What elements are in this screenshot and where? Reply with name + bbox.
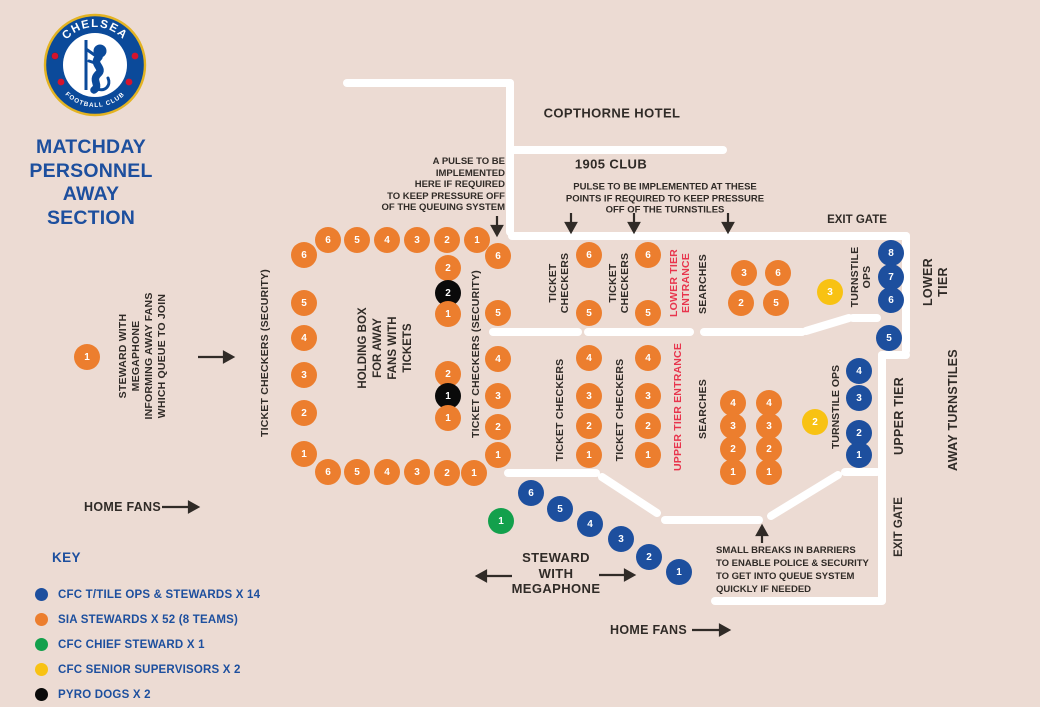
key-list: CFC T/TILE OPS & STEWARDS X 14SIA STEWAR…	[35, 582, 260, 707]
label-lower-tier: LOWER TIER	[921, 258, 951, 306]
orange-steward-marker: 1	[461, 460, 487, 486]
label-exit-gate-top: EXIT GATE	[827, 214, 887, 228]
label-1905-club: 1905 CLUB	[575, 156, 647, 171]
key-item: CFC SENIOR SUPERVISORS X 2	[35, 657, 260, 682]
orange-steward-marker: 5	[763, 290, 789, 316]
annotation-small-breaks: SMALL BREAKS IN BARRIERS TO ENABLE POLIC…	[716, 544, 869, 596]
home-fans-bottom-arrow	[692, 625, 729, 635]
orange-steward-marker: 1	[576, 442, 602, 468]
blue-steward-marker: 8	[878, 240, 904, 266]
orange-steward-marker: 5	[635, 300, 661, 326]
label-ticket-checkers-security-left: TICKET CHECKERS (SECURITY)	[259, 269, 271, 437]
blue-steward-marker: 4	[846, 358, 872, 384]
orange-steward-marker: 6	[576, 242, 602, 268]
label-steward-megaphone-bottom: STEWARD WITH MEGAPHONE	[512, 550, 601, 597]
logo-ball-icon	[52, 53, 59, 60]
orange-steward-marker: 6	[291, 242, 317, 268]
orange-steward-marker: 2	[576, 413, 602, 439]
key-item: CFC CHIEF STEWARD X 1	[35, 632, 260, 657]
orange-steward-marker: 2	[291, 400, 317, 426]
key-item-label: CFC CHIEF STEWARD X 1	[58, 639, 205, 651]
orange-steward-marker: 3	[485, 383, 511, 409]
orange-steward-marker: 1	[74, 344, 100, 370]
page-title: MATCHDAY PERSONNEL AWAY SECTION	[11, 136, 171, 230]
label-home-fans-left: HOME FANS	[84, 500, 161, 515]
orange-steward-marker: 2	[485, 414, 511, 440]
wall-queue-diagonal-1	[602, 477, 657, 513]
blue-steward-marker: 3	[608, 526, 634, 552]
pulse-left-arrow	[492, 216, 502, 235]
key-item: SIA STEWARDS X 52 (8 TEAMS)	[35, 607, 260, 632]
orange-steward-marker: 6	[765, 260, 791, 286]
orange-steward-marker: 2	[728, 290, 754, 316]
orange-steward-marker: 4	[485, 346, 511, 372]
orange-steward-marker: 1	[720, 459, 746, 485]
orange-steward-marker: 1	[435, 301, 461, 327]
wall-diagonal-lower-tier	[806, 318, 849, 331]
label-turnstile-ops-upper: TURNSTILE OPS	[849, 247, 873, 308]
orange-steward-marker: 4	[635, 345, 661, 371]
key-heading: KEY	[52, 550, 81, 566]
home-fans-left-arrow	[162, 502, 198, 512]
orange-legend-dot-icon	[35, 613, 48, 626]
orange-steward-marker: 1	[291, 441, 317, 467]
label-lower-tier-entrance: LOWER TIER ENTRANCE	[668, 249, 692, 317]
key-item-label: SIA STEWARDS X 52 (8 TEAMS)	[58, 614, 238, 626]
logo-ball-icon	[132, 53, 139, 60]
orange-steward-marker: 6	[315, 227, 341, 253]
orange-steward-marker: 3	[635, 383, 661, 409]
label-home-fans-bottom: HOME FANS	[610, 623, 687, 638]
orange-steward-marker: 6	[485, 243, 511, 269]
blue-steward-marker: 3	[846, 385, 872, 411]
key-item: CFC T/TILE OPS & STEWARDS X 14	[35, 582, 260, 607]
orange-steward-marker: 4	[374, 227, 400, 253]
yellow-legend-dot-icon	[35, 663, 48, 676]
label-ticket-checkers-2-lower: TICKET CHECKERS	[614, 359, 626, 462]
blue-steward-marker: 5	[876, 325, 902, 351]
label-holding-box: HOLDING BOX FOR AWAY FANS WITH TICKETS	[356, 307, 416, 388]
orange-steward-marker: 5	[291, 290, 317, 316]
blue-steward-marker: 5	[547, 496, 573, 522]
label-searches-upper: SEARCHES	[697, 254, 709, 314]
orange-steward-marker: 1	[756, 459, 782, 485]
blue-legend-dot-icon	[35, 588, 48, 601]
logo-flower-icon	[58, 79, 65, 86]
label-copthorne-hotel: COPTHORNE HOTEL	[544, 105, 681, 120]
label-steward-megaphone-left: STEWARD WITH MEGAPHONE INFORMING AWAY FA…	[117, 292, 169, 419]
orange-steward-marker: 4	[576, 345, 602, 371]
orange-steward-marker: 2	[434, 227, 460, 253]
orange-steward-marker: 4	[374, 459, 400, 485]
black-legend-dot-icon	[35, 688, 48, 701]
orange-steward-marker: 4	[291, 325, 317, 351]
orange-steward-marker: 2	[635, 413, 661, 439]
blue-steward-marker: 4	[577, 511, 603, 537]
orange-steward-marker: 3	[404, 459, 430, 485]
chelsea-club-logo: CHELSEA FOOTBALL CLUB	[42, 12, 148, 118]
diagram-stage: CHELSEA FOOTBALL CLUB MATCHDAY PERSONNEL…	[0, 0, 1040, 707]
green-legend-dot-icon	[35, 638, 48, 651]
orange-steward-marker: 5	[344, 227, 370, 253]
steward-bottom-right-arrow	[599, 570, 634, 580]
key-item-label: CFC SENIOR SUPERVISORS X 2	[58, 664, 241, 676]
blue-steward-marker: 6	[518, 480, 544, 506]
blue-steward-marker: 1	[846, 442, 872, 468]
key-item-label: PYRO DOGS X 2	[58, 689, 151, 701]
logo-flower-icon	[126, 79, 133, 86]
label-exit-gate-right: EXIT GATE	[893, 497, 905, 557]
steward-left-arrow	[198, 352, 233, 362]
orange-steward-marker: 3	[731, 260, 757, 286]
label-searches-lower: SEARCHES	[697, 379, 709, 439]
label-ticket-checkers-1-upper: TICKET CHECKERS	[547, 253, 571, 314]
orange-steward-marker: 5	[344, 459, 370, 485]
green-steward-marker: 1	[488, 508, 514, 534]
blue-steward-marker: 1	[666, 559, 692, 585]
orange-steward-marker: 3	[404, 227, 430, 253]
steward-bottom-left-arrow	[477, 571, 512, 581]
orange-steward-marker: 1	[635, 442, 661, 468]
small-breaks-arrow	[757, 526, 767, 543]
orange-steward-marker: 5	[485, 300, 511, 326]
label-turnstile-ops-lower: TURNSTILE OPS	[830, 365, 842, 449]
key-item-label: CFC T/TILE OPS & STEWARDS X 14	[58, 589, 260, 601]
label-ticket-checkers-1-lower: TICKET CHECKERS	[554, 359, 566, 462]
orange-steward-marker: 6	[315, 459, 341, 485]
orange-steward-marker: 5	[576, 300, 602, 326]
orange-steward-marker: 1	[485, 442, 511, 468]
label-away-turnstiles: AWAY TURNSTILES	[946, 349, 960, 471]
blue-steward-marker: 2	[636, 544, 662, 570]
annotation-pulse-left: A PULSE TO BE IMPLEMENTED HERE IF REQUIR…	[381, 156, 505, 214]
yellow-steward-marker: 3	[817, 279, 843, 305]
orange-steward-marker: 2	[435, 255, 461, 281]
label-ticket-checkers-2-upper: TICKET CHECKERS	[607, 253, 631, 314]
label-upper-tier: UPPER TIER	[892, 377, 906, 455]
orange-steward-marker: 3	[291, 362, 317, 388]
blue-steward-marker: 6	[878, 287, 904, 313]
label-ticket-checkers-security-right: TICKET CHECKERS (SECURITY)	[470, 270, 482, 438]
annotation-pulse-right: PULSE TO BE IMPLEMENTED AT THESE POINTS …	[566, 182, 764, 217]
key-item: PYRO DOGS X 2	[35, 682, 260, 707]
label-upper-tier-entrance: UPPER TIER ENTRANCE	[672, 343, 684, 471]
wall-queue-diagonal-2	[771, 475, 838, 516]
yellow-steward-marker: 2	[802, 409, 828, 435]
orange-steward-marker: 2	[434, 460, 460, 486]
orange-steward-marker: 3	[576, 383, 602, 409]
orange-steward-marker: 1	[435, 405, 461, 431]
orange-steward-marker: 6	[635, 242, 661, 268]
